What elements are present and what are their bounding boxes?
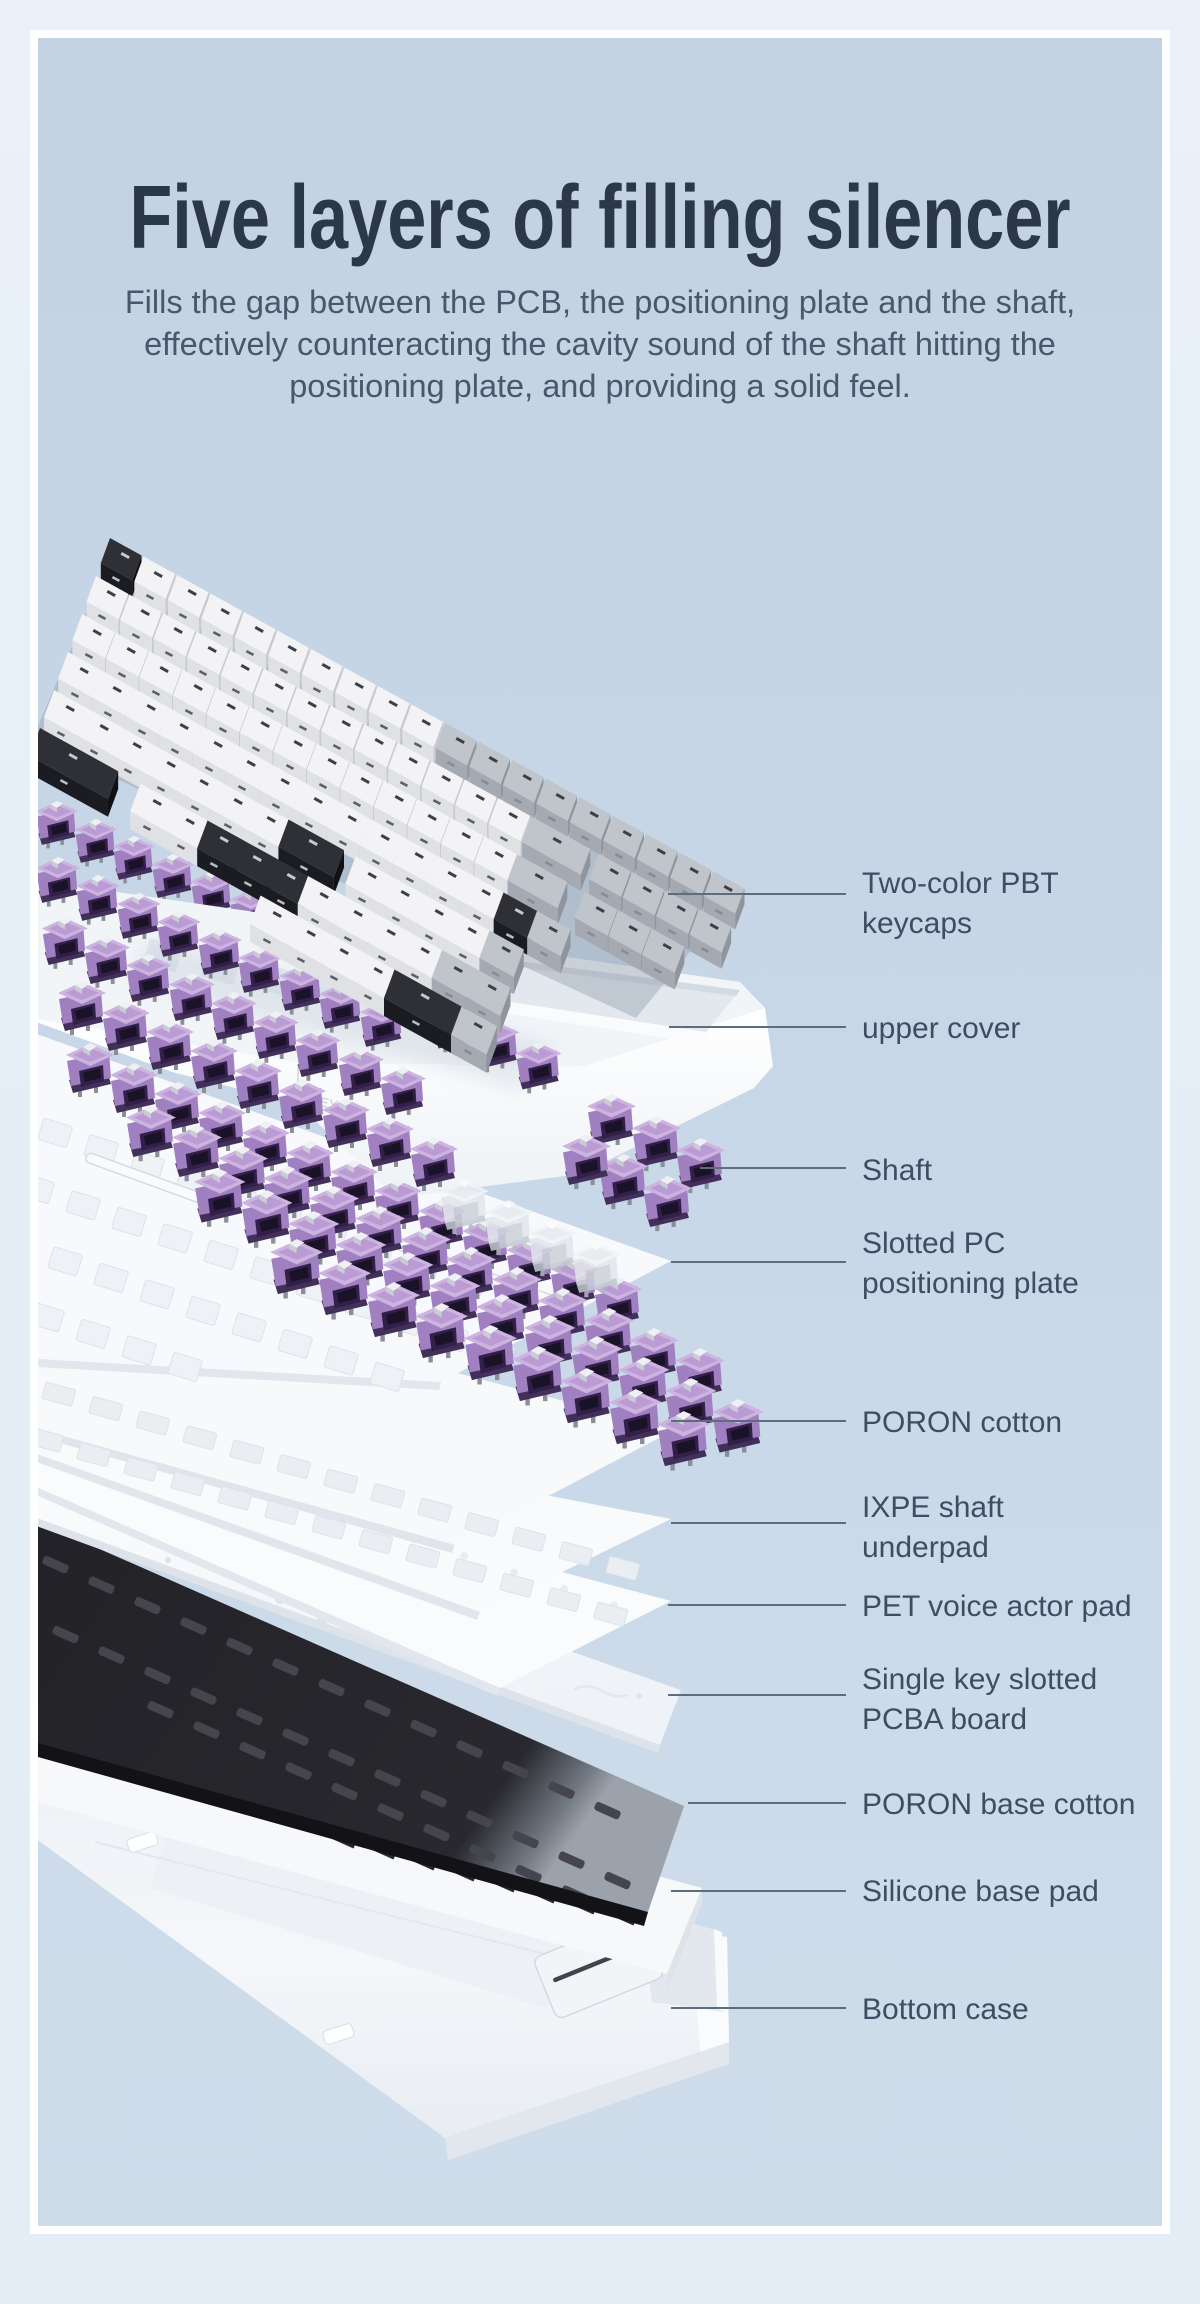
svg-text:PORON cotton: PORON cotton — [862, 1406, 1062, 1439]
svg-text:Five layers of filling silence: Five layers of filling silencer — [129, 168, 1070, 268]
svg-text:keycaps: keycaps — [862, 907, 972, 940]
svg-text:positioning plate, and providi: positioning plate, and providing a solid… — [289, 368, 911, 404]
svg-text:Fills the gap between the PCB,: Fills the gap between the PCB, the posit… — [125, 284, 1075, 320]
svg-text:upper cover: upper cover — [862, 1012, 1020, 1045]
svg-text:underpad: underpad — [862, 1531, 989, 1564]
svg-text:Single key slotted: Single key slotted — [862, 1663, 1097, 1696]
svg-text:IXPE shaft: IXPE shaft — [862, 1491, 1004, 1524]
svg-text:Two-color PBT: Two-color PBT — [862, 867, 1059, 900]
svg-text:Slotted PC: Slotted PC — [862, 1227, 1005, 1260]
svg-text:Shaft: Shaft — [862, 1154, 933, 1187]
svg-text:PET voice actor pad: PET voice actor pad — [862, 1590, 1132, 1623]
svg-text:positioning plate: positioning plate — [862, 1267, 1079, 1300]
svg-text:Silicone base pad: Silicone base pad — [862, 1875, 1099, 1908]
svg-text:effectively counteracting the: effectively counteracting the cavity sou… — [144, 326, 1056, 362]
svg-text:PORON base cotton: PORON base cotton — [862, 1788, 1135, 1821]
svg-text:PCBA board: PCBA board — [862, 1703, 1027, 1736]
svg-text:Bottom case: Bottom case — [862, 1993, 1029, 2026]
